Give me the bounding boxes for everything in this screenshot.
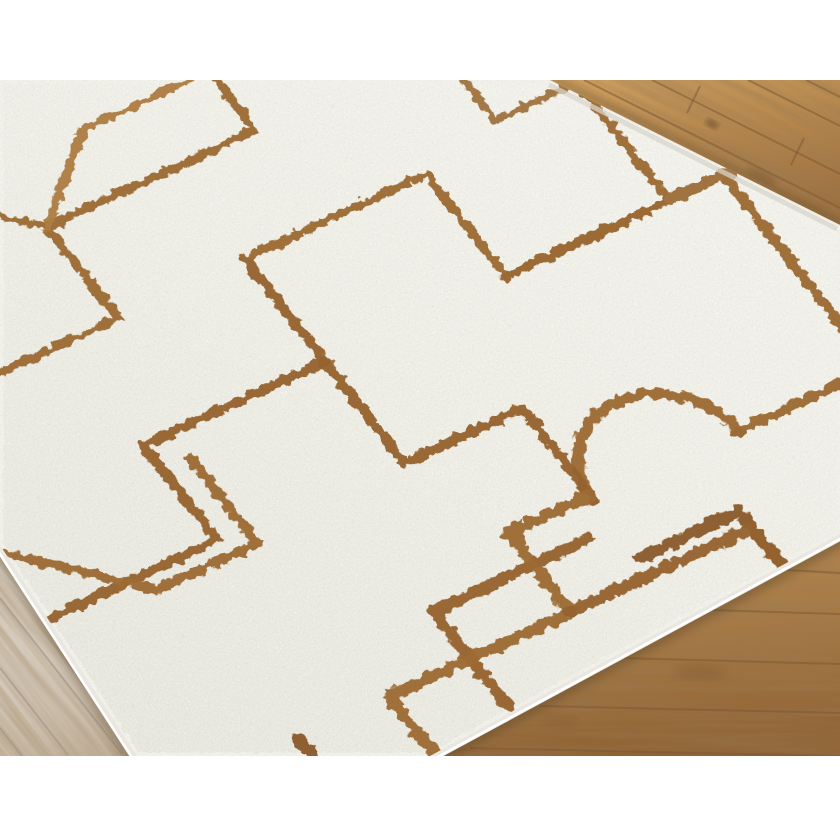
photo-svg [0, 80, 840, 756]
product-photo-page [0, 0, 840, 840]
rug-product-photo [0, 80, 840, 756]
